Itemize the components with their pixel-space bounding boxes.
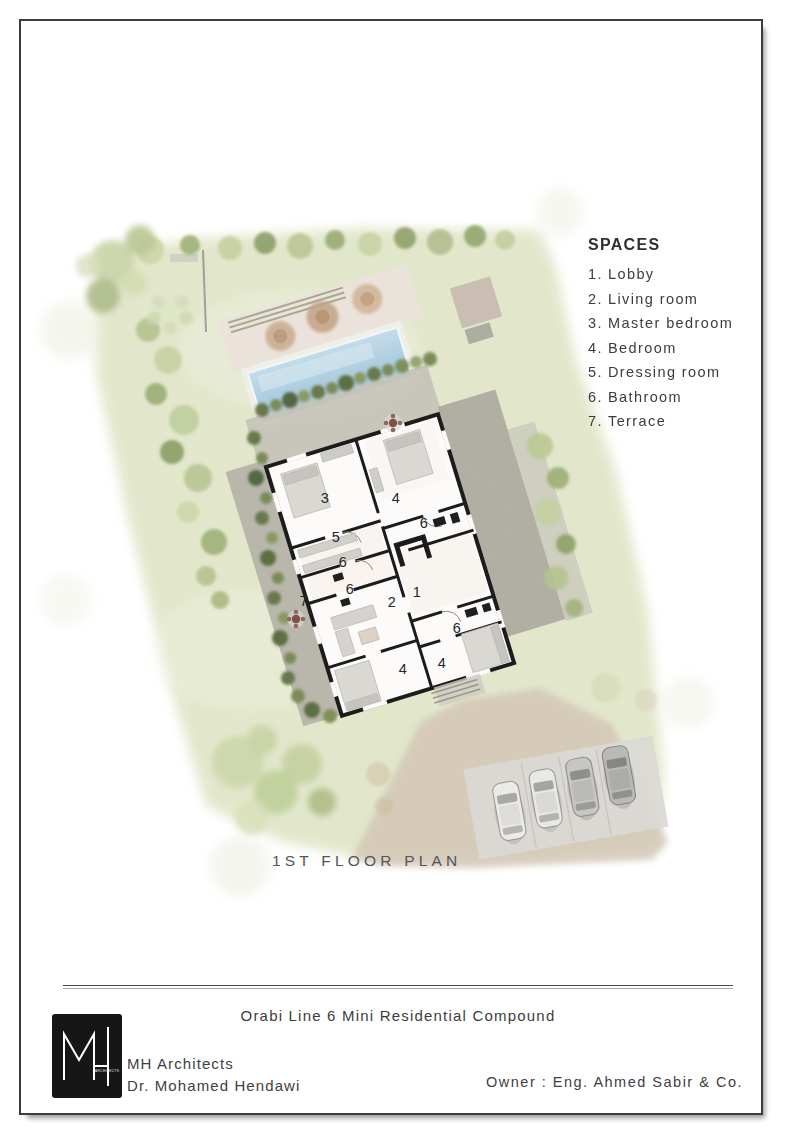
room-label: 4 (399, 661, 408, 677)
room-label: 6 (453, 620, 462, 636)
legend-list: 1.Lobby 2.Living room 3.Master bedroom 4… (588, 262, 733, 434)
legend-item: 6.Bathroom (588, 385, 733, 410)
room-label: 2 (388, 594, 397, 610)
logo-subtext: ARCHITECTS (95, 1069, 119, 1073)
firm-name: MH Architects (127, 1053, 300, 1075)
plan-caption: 1ST FLOOR PLAN (272, 852, 461, 870)
legend-item: 1.Lobby (588, 262, 733, 287)
legend-item: 2.Living room (588, 287, 733, 312)
presentation-sheet: 3 4 6 5 6 6 7 2 1 6 4 4 SPACES 1.Lobby 2… (0, 0, 800, 1143)
room-label: 4 (438, 655, 447, 671)
mh-logo: MH ARCHITECTS (52, 1014, 122, 1098)
legend-heading: SPACES (588, 236, 733, 254)
legend-item: 3.Master bedroom (588, 311, 733, 336)
room-label: 7 (300, 593, 309, 609)
mh-monogram: ARCHITECTS (52, 1014, 122, 1098)
owner-credit: Owner : Eng. Ahmed Sabir & Co. (486, 1074, 743, 1090)
credits-block: MH Architects Dr. Mohamed Hendawi (127, 1053, 300, 1096)
room-label: 5 (332, 529, 341, 545)
site-plan: 3 4 6 5 6 6 7 2 1 6 4 4 (0, 0, 800, 1143)
spaces-legend: SPACES 1.Lobby 2.Living room 3.Master be… (588, 236, 733, 434)
legend-item: 4.Bedroom (588, 336, 733, 361)
footer-rule (63, 985, 733, 989)
room-label: 1 (413, 584, 422, 600)
room-label: 3 (321, 490, 330, 506)
logo-letter-m (64, 1034, 94, 1080)
legend-item: 5.Dressing room (588, 360, 733, 385)
room-label: 6 (346, 581, 355, 597)
room-label: 6 (339, 554, 348, 570)
architect-name: Dr. Mohamed Hendawi (127, 1075, 300, 1097)
legend-item: 7.Terrace (588, 409, 733, 434)
room-label: 4 (392, 490, 401, 506)
project-title: Orabi Line 6 Mini Residential Compound (63, 1007, 733, 1024)
room-label: 6 (420, 515, 429, 531)
